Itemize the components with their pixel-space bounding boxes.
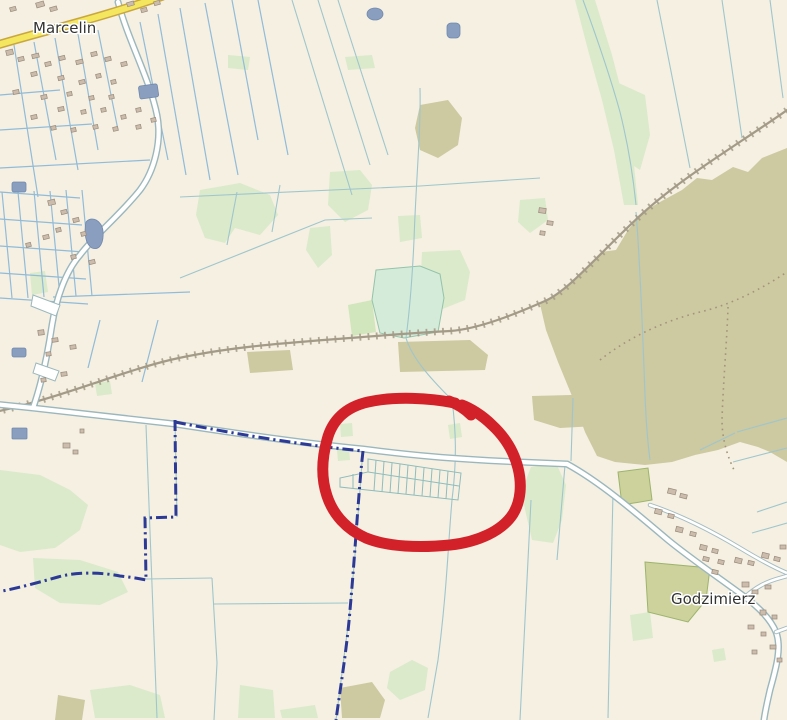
- map-viewport[interactable]: Marcelin Godzimierz: [0, 0, 787, 720]
- pond: [12, 182, 26, 192]
- place-label-godzimierz: Godzimierz: [671, 590, 756, 608]
- pond: [85, 219, 103, 249]
- pond: [138, 84, 159, 100]
- pond: [12, 428, 27, 439]
- map-canvas[interactable]: Marcelin Godzimierz: [0, 0, 787, 720]
- pond: [367, 8, 383, 20]
- pond: [12, 348, 26, 357]
- place-label-marcelin: Marcelin: [33, 19, 96, 37]
- pond: [447, 23, 460, 38]
- wetland-areas: [372, 266, 444, 338]
